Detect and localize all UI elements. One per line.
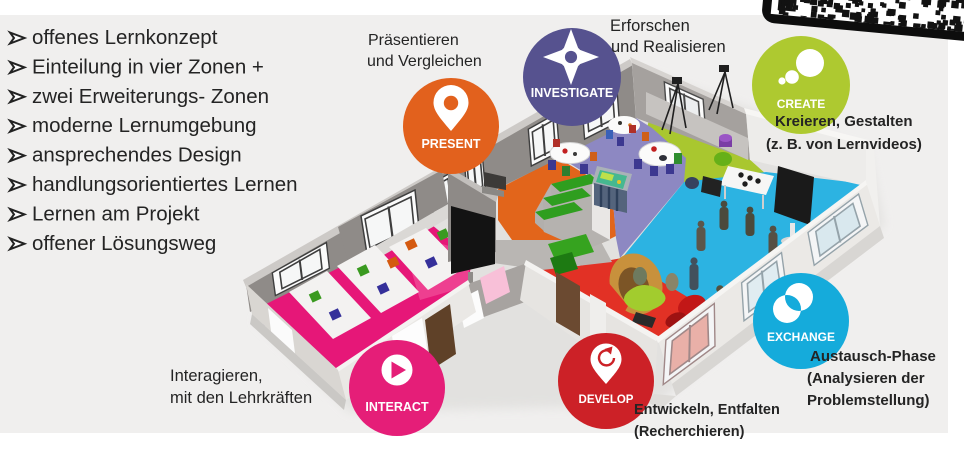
svg-text:PRESENT: PRESENT xyxy=(421,137,480,151)
svg-text:und Vergleichen: und Vergleichen xyxy=(367,53,482,70)
svg-text:(Analysieren der: (Analysieren der xyxy=(807,370,925,387)
svg-text:offenes Lernkonzept: offenes Lernkonzept xyxy=(32,26,218,49)
svg-text:offener Lösungsweg: offener Lösungsweg xyxy=(32,232,216,255)
svg-text:CREATE: CREATE xyxy=(777,97,825,111)
svg-text:handlungsorientiertes Lernen: handlungsorientiertes Lernen xyxy=(32,173,298,196)
svg-text:Präsentieren: Präsentieren xyxy=(368,32,459,49)
svg-text:EXCHANGE: EXCHANGE xyxy=(767,330,835,344)
svg-text:INTERACT: INTERACT xyxy=(365,400,429,414)
svg-text:ansprechendes Design: ansprechendes Design xyxy=(32,144,242,167)
svg-text:mit den Lehrkräften: mit den Lehrkräften xyxy=(170,389,312,407)
svg-text:(z. B. von Lernvideos): (z. B. von Lernvideos) xyxy=(766,136,922,153)
svg-text:DEVELOP: DEVELOP xyxy=(579,394,634,406)
svg-text:INVESTIGATE: INVESTIGATE xyxy=(531,86,613,100)
svg-text:Austausch-Phase: Austausch-Phase xyxy=(810,348,936,365)
svg-text:Entwickeln, Entfalten: Entwickeln, Entfalten xyxy=(634,402,780,418)
svg-text:zwei Erweiterungs- Zonen: zwei Erweiterungs- Zonen xyxy=(32,85,269,108)
svg-text:und Realisieren: und Realisieren xyxy=(611,38,726,56)
svg-text:(Recherchieren): (Recherchieren) xyxy=(634,424,745,440)
svg-text:Interagieren,: Interagieren, xyxy=(170,367,263,385)
svg-text:Kreieren, Gestalten: Kreieren, Gestalten xyxy=(775,113,913,130)
svg-text:moderne Lernumgebung: moderne Lernumgebung xyxy=(32,114,257,137)
svg-text:Einteilung in vier Zonen +: Einteilung in vier Zonen + xyxy=(32,55,264,78)
svg-text:Problemstellung): Problemstellung) xyxy=(807,392,930,409)
svg-text:Erforschen: Erforschen xyxy=(610,17,690,35)
svg-text:Lernen am Projekt: Lernen am Projekt xyxy=(32,202,200,225)
